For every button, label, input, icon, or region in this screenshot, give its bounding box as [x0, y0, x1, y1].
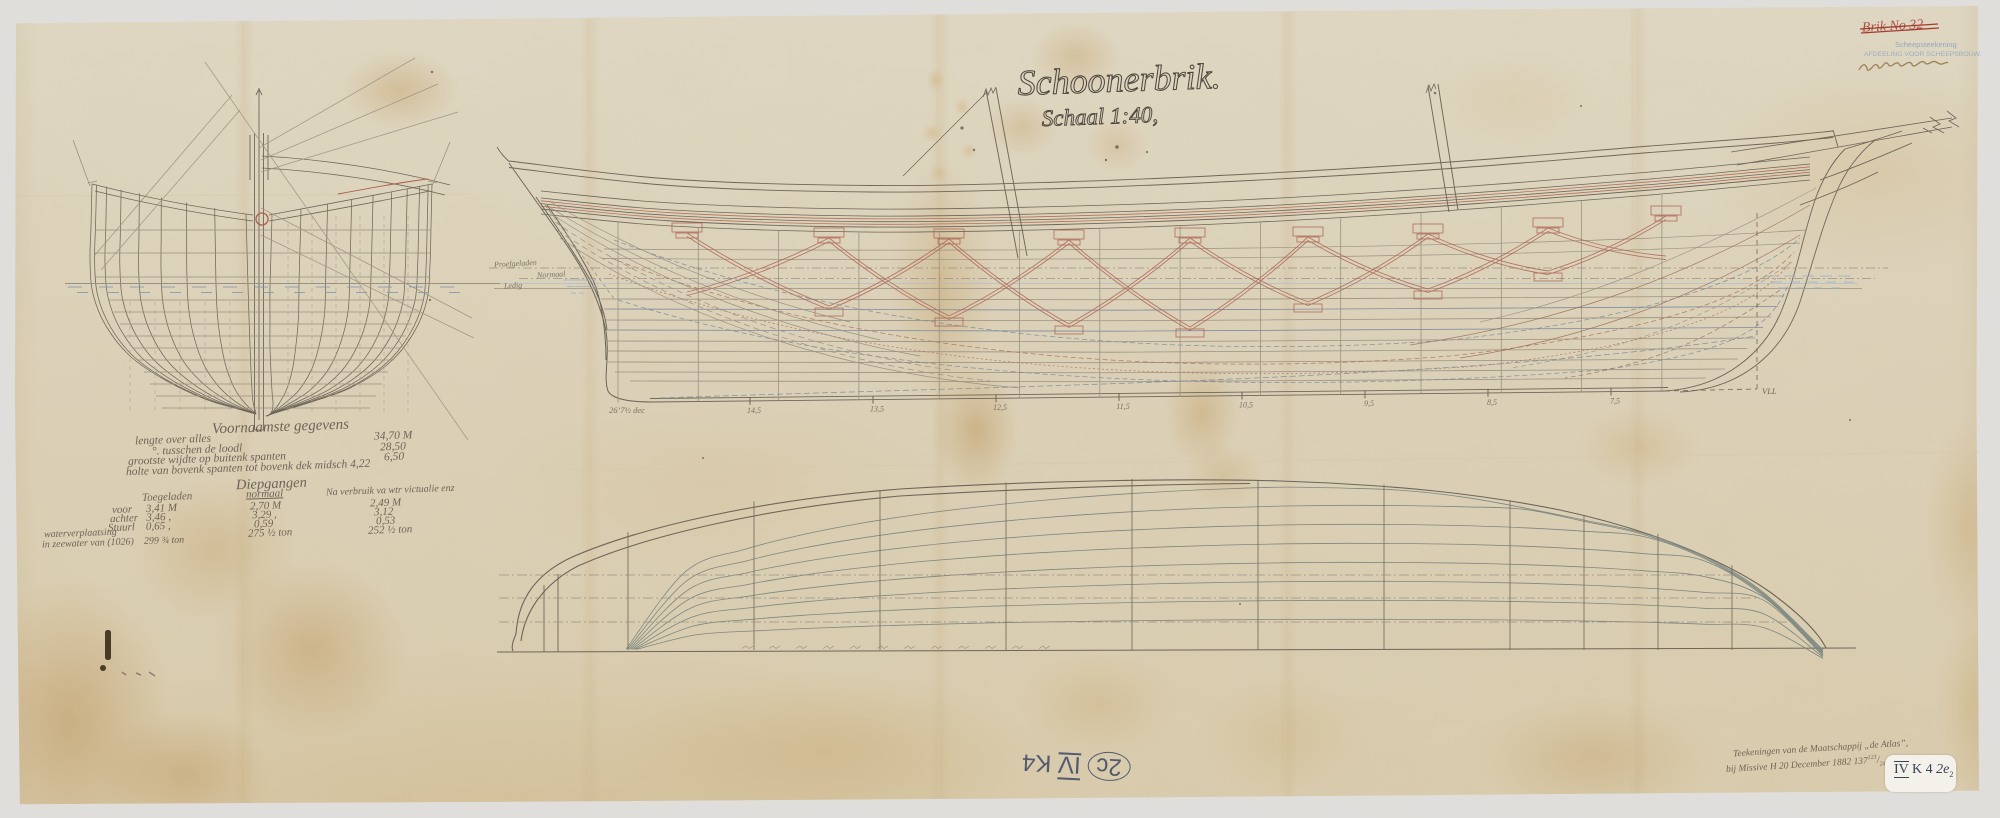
svg-text:VLL: VLL [1762, 386, 1777, 396]
svg-text:10,5: 10,5 [1239, 401, 1253, 410]
svg-text:14,5: 14,5 [747, 406, 761, 415]
svg-text:8,5: 8,5 [1487, 398, 1497, 407]
svg-text:11,5: 11,5 [1116, 402, 1129, 411]
svg-text:9,5: 9,5 [1364, 399, 1374, 408]
svg-text:26’7½ dec: 26’7½ dec [609, 405, 645, 415]
svg-text:12,5: 12,5 [993, 403, 1007, 412]
svg-text:7,5: 7,5 [1610, 397, 1620, 406]
svg-text:13,5: 13,5 [870, 405, 884, 414]
